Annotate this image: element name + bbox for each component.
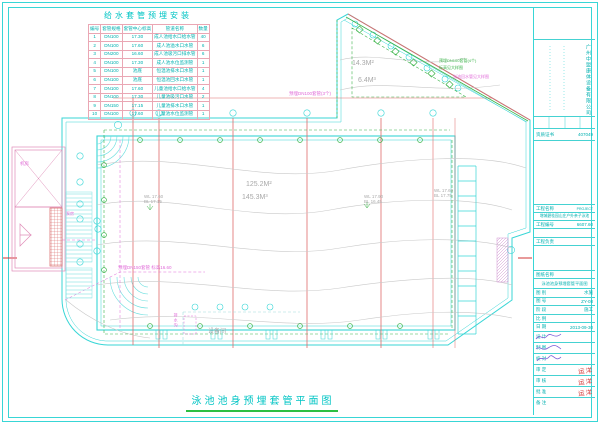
note-row: 备 注: [534, 397, 595, 409]
project-label: 工程名称: [534, 206, 554, 212]
lead-label: 工程负责: [534, 239, 554, 245]
stamp-row-reviewed: 审 核 运洋: [534, 375, 595, 386]
walkway-stripes: [66, 192, 92, 298]
seal-cells: [534, 116, 595, 128]
cell-spec: DN100: [101, 33, 122, 42]
cell-qty: 1: [197, 76, 209, 85]
plant-room-label: 机房: [20, 161, 29, 166]
cell-no: 7: [89, 85, 101, 94]
field-row: 图 号 ZY-08: [534, 297, 595, 306]
cell-qty: 2: [197, 93, 209, 102]
cell-name: 儿童池给水口给水管: [153, 85, 197, 94]
signature: [534, 343, 564, 353]
cell-elev: 17.30: [122, 59, 153, 68]
field-value: ZY-08: [581, 299, 595, 304]
cert-value: 407049: [578, 132, 595, 137]
table-row: 7 DN100 17.60 儿童池给水口给水管 4: [89, 85, 210, 94]
cell-name: 成人池给水口给水管: [153, 33, 197, 42]
field-row: 阶 段 施工: [534, 305, 595, 314]
col-no: 编号: [89, 25, 101, 34]
annotation-return-pipe: 溢流回水管见大样图: [453, 75, 489, 80]
project-name-row: 增城碧桂园山庄户外亲子泳池: [534, 212, 595, 220]
cell-elev: 17.30: [122, 93, 153, 102]
cell-spec: DN100: [101, 42, 122, 51]
cell-spec: DN100: [101, 67, 122, 76]
sleeve-table: 编号 套管规格 套管中心标高 管道名称 数量 1 DN100 17.30 成人池…: [88, 24, 210, 120]
cell-spec: DN100: [101, 59, 122, 68]
field-row: 图 别 水施: [534, 288, 595, 297]
job-no-row: 工程编号 6607.60: [534, 220, 595, 228]
kids-pool-area: 14.3M²: [352, 60, 374, 68]
annotation-dn150: 预埋DN150套管 标高16.60: [118, 265, 172, 270]
cell-qty: 6: [197, 42, 209, 51]
col-name: 管道名称: [153, 25, 197, 34]
pump-room-label: 泵房: [66, 212, 74, 217]
table-row: 10 DN100 17.60 儿童池水位监测管 1: [89, 110, 210, 119]
cell-no: 5: [89, 67, 101, 76]
sign-row-drawn: 制 图: [534, 342, 595, 353]
main-title: 泳池池身预埋套管平面图: [183, 396, 343, 408]
cell-qty: 1: [197, 59, 209, 68]
col-elev: 套管中心标高: [122, 25, 153, 34]
cell-qty: 40: [197, 33, 209, 42]
field-rows: 图 别 水施 图 号 ZY-08 阶 段 施工 比 例: [534, 288, 595, 331]
cell-no: 10: [89, 110, 101, 119]
field-value: 水施: [584, 290, 595, 296]
adult-pool-volume: 145.3M³: [242, 194, 268, 202]
drawing-name-row: 泳池池身预埋套管平面图: [534, 278, 595, 288]
company-box: 广州中盟康体设备有限公司: [534, 39, 595, 116]
stamp-label: 审 定: [534, 367, 546, 373]
job-no-label: 工程编号: [534, 222, 554, 228]
field-row: 比 例: [534, 314, 595, 323]
stamp-label: 审 核: [534, 378, 546, 384]
drawing-label-row: 图纸名称: [534, 270, 595, 278]
drawing-name-label: 图纸名称: [534, 272, 554, 278]
cell-elev: 16.60: [122, 50, 153, 59]
adult-pool-area: 125.2M²: [246, 181, 272, 189]
cell-spec: DN100: [101, 110, 122, 119]
drain-label: 排水沟: [173, 313, 178, 328]
cell-qty: 1: [197, 102, 209, 111]
cell-elev: 17.60: [122, 110, 153, 119]
project-label-row: 工程名称 PROJECT: [534, 204, 595, 212]
title-block: 广州中盟康体设备有限公司 资质证书 407049 工程名称 PROJECT 增城…: [533, 8, 595, 415]
cell-spec: DN100: [101, 93, 122, 102]
main-drain-boxes: [156, 330, 439, 339]
project-name: 增城碧桂园山庄户外亲子泳池: [540, 214, 589, 219]
cell-name: 儿童池水位监测管: [153, 110, 197, 119]
table-row: 3 DN200 16.60 成人池吸污口排水管 6: [89, 50, 210, 59]
table-row: 2 DN100 17.60 成人池溢水口水管 6: [89, 42, 210, 51]
stamp-label: 批 准: [534, 389, 546, 395]
col-spec: 套管规格: [101, 25, 122, 34]
cell-name: 儿童池吸污口水管: [153, 93, 197, 102]
signature: [534, 332, 564, 342]
cell-spec: DN200: [101, 50, 122, 59]
overflow-grating: [458, 166, 476, 334]
cell-name: 成人池水位监测管: [153, 59, 197, 68]
kids-pool-volume: 6.4M³: [358, 77, 376, 85]
cell-qty: 4: [197, 85, 209, 94]
annotation-dn100-3: 预埋DN100套管(3个): [289, 91, 331, 96]
table-row: 1 DN100 17.30 成人池给水口给水管 40: [89, 33, 210, 42]
field-value: 施工: [584, 307, 595, 313]
field-label: 日 期: [534, 324, 546, 330]
cell-elev: 17.60: [122, 85, 153, 94]
table-row: 5 DN100 池底 恒温池排水口水管 1: [89, 67, 210, 76]
field-value: 2013-09-30: [570, 325, 595, 330]
drawing-name: 泳池池身预埋套管平面图: [541, 281, 587, 287]
annotation-elev-ref: 标高见大样图: [439, 66, 463, 71]
cell-no: 6: [89, 76, 101, 85]
note-label: 备 注: [534, 400, 546, 406]
cell-qty: 1: [197, 67, 209, 76]
cell-qty: 1: [197, 110, 209, 119]
level-label-3: WL 17.60BL 17.75: [434, 188, 453, 198]
sign-row-design: 设 计: [534, 331, 595, 342]
signature: [534, 354, 564, 364]
stamp-row-authorized: 批 准 运洋: [534, 386, 595, 397]
table-row: 8 DN100 17.30 儿童池吸污口水管 2: [89, 93, 210, 102]
blank-row-2: [534, 245, 595, 270]
cell-spec: DN100: [101, 85, 122, 94]
sign-row-checked: 校 对: [534, 353, 595, 364]
field-row: 日 期 2013-09-30: [534, 322, 595, 331]
table-row: 9 DN150 17.15 儿童池排水口水管 1: [89, 102, 210, 111]
title-underline: [186, 410, 338, 412]
table-row: 6 DN100 池底 恒温池回水口水管 1: [89, 76, 210, 85]
job-no-value: 6607.60: [577, 222, 595, 227]
annotation-dn100-4: 预埋DN100套管(4个): [439, 59, 476, 64]
cell-no: 4: [89, 59, 101, 68]
field-label: 阶 段: [534, 307, 546, 313]
blank-row-1: [534, 228, 595, 237]
cell-no: 1: [89, 33, 101, 42]
cell-qty: 6: [197, 50, 209, 59]
cell-elev: 池底: [122, 76, 153, 85]
table-row: 4 DN100 17.30 成人池水位监测管 1: [89, 59, 210, 68]
field-label: 图 别: [534, 290, 546, 296]
company-name: 广州中盟康体设备有限公司: [585, 44, 592, 116]
field-label: 比 例: [534, 316, 546, 322]
title-block-logo-box: [534, 8, 595, 39]
cell-name: 恒温池回水口水管: [153, 76, 197, 85]
cell-elev: 17.15: [122, 102, 153, 111]
cell-no: 3: [89, 50, 101, 59]
cell-name: 恒温池排水口水管: [153, 67, 197, 76]
cell-spec: DN150: [101, 102, 122, 111]
cell-name: 成人池溢水口水管: [153, 42, 197, 51]
table-header-row: 编号 套管规格 套管中心标高 管道名称 数量: [89, 25, 210, 34]
level-label-2: WL 17.90BL 16.45: [364, 194, 383, 204]
col-qty: 数量: [197, 25, 209, 34]
drawing-sheet: 给水套管预埋安装 编号 套管规格 套管中心标高 管道名称 数量 1 DN100 …: [0, 0, 600, 424]
cell-name: 成人池吸污口排水管: [153, 50, 197, 59]
cell-no: 2: [89, 42, 101, 51]
hatched-column: [497, 238, 508, 282]
cell-name: 儿童池排水口水管: [153, 102, 197, 111]
blank-box: [534, 140, 595, 204]
field-label: 图 号: [534, 298, 546, 304]
lead-row: 工程负责: [534, 237, 595, 245]
cell-no: 9: [89, 102, 101, 111]
cell-elev: 17.30: [122, 33, 153, 42]
cell-no: 8: [89, 93, 101, 102]
adult-pool-walls: [97, 136, 455, 330]
cell-elev: 池底: [122, 67, 153, 76]
cert-row: 资质证书 407049: [534, 128, 595, 140]
cell-elev: 17.60: [122, 42, 153, 51]
equipment-room-label: 设备间: [208, 329, 226, 336]
cert-label: 资质证书: [534, 132, 554, 138]
cell-spec: DN100: [101, 76, 122, 85]
stamp-row-approved: 审 定 运洋: [534, 364, 595, 375]
table-title: 给水套管预埋安装: [98, 11, 198, 20]
level-label-1: WL 17.60BL 17.15: [144, 194, 163, 204]
project-tag: PROJECT: [577, 207, 595, 211]
